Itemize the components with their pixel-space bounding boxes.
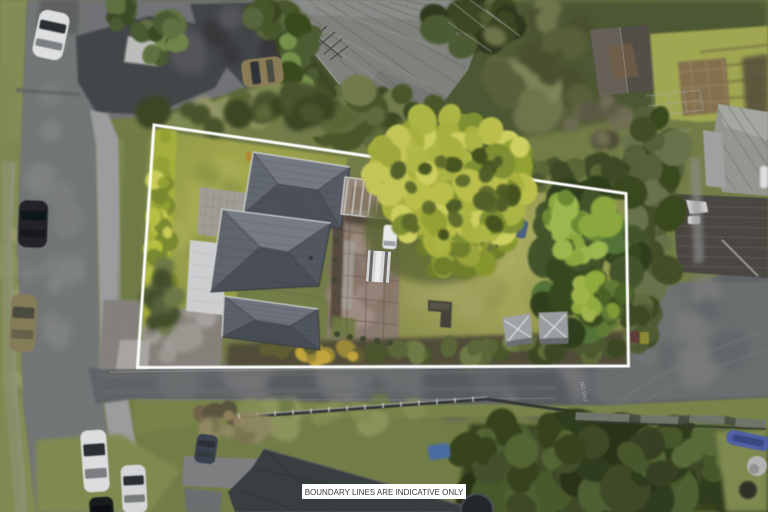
svg-text:BOUNDARY LINES ARE INDICATIVE: BOUNDARY LINES ARE INDICATIVE ONLY	[305, 488, 464, 497]
